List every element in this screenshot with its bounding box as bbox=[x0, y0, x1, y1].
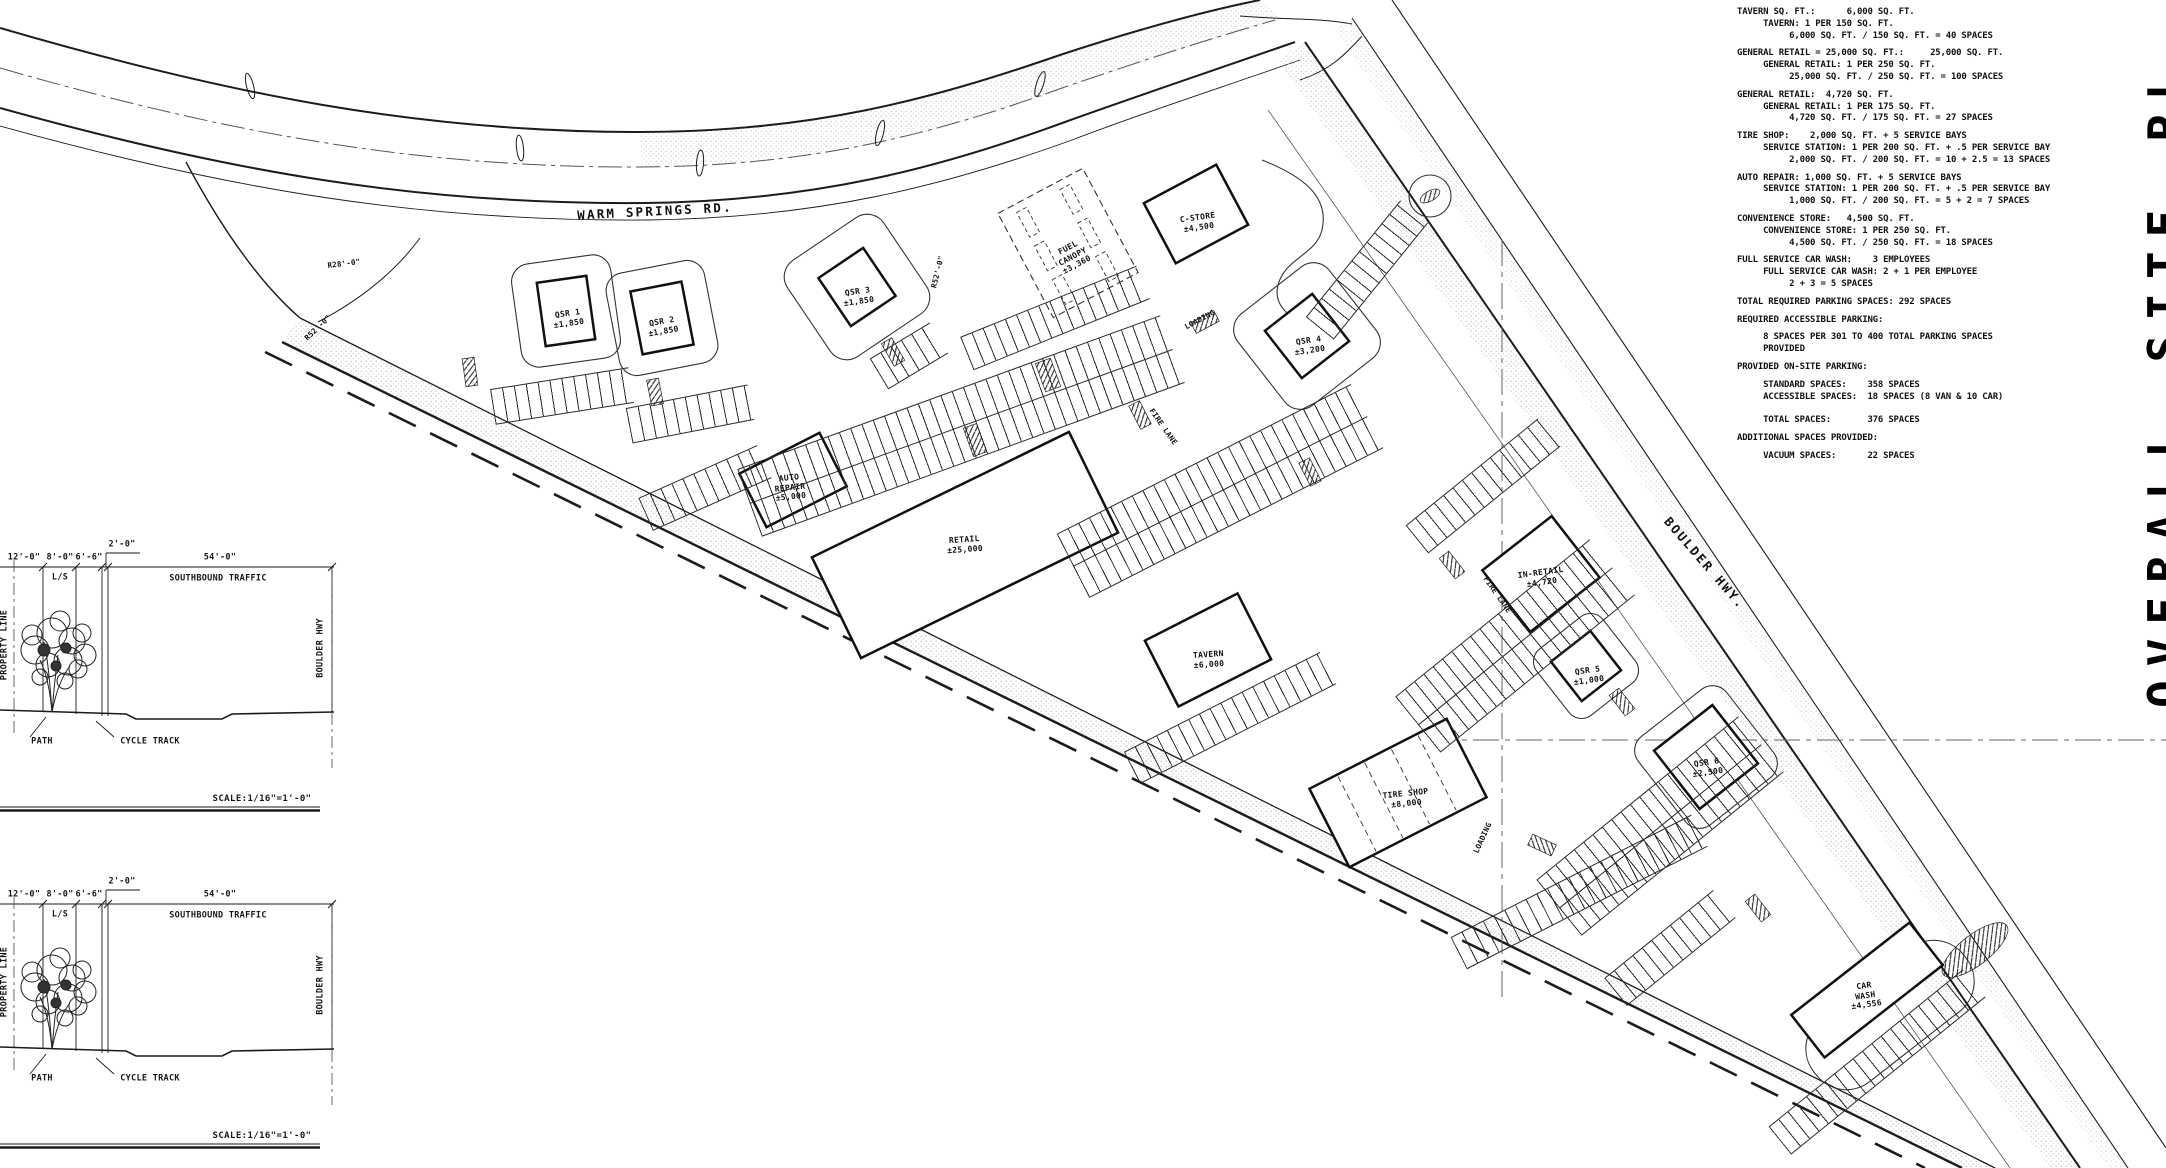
dim-label: 8'-0" bbox=[46, 891, 73, 900]
sheet-title-vertical: OVERALL SITE PL bbox=[2138, 59, 2166, 708]
path-label: PATH bbox=[31, 738, 53, 747]
building-label-qsr-2: QSR 2±1,850 bbox=[643, 296, 680, 339]
calc-convenience-store: CONVENIENCE STORE: 4,500 SQ. FT. CONVENI… bbox=[1737, 214, 2129, 249]
calc-additional-heading: ADDITIONAL SPACES PROVIDED: bbox=[1737, 433, 2129, 445]
calc-car-wash: FULL SERVICE CAR WASH: 3 EMPLOYEES FULL … bbox=[1737, 255, 2129, 290]
calc-tavern: TAVERN SQ. FT.: 6,000 SQ. FT. TAVERN: 1 … bbox=[1737, 7, 2129, 42]
path-label: PATH bbox=[31, 1075, 53, 1084]
scale-label: SCALE:1/16"=1'-0" bbox=[213, 794, 312, 804]
calc-general-retail-25k: GENERAL RETAIL = 25,000 SQ. FT.: 25,000 … bbox=[1737, 48, 2129, 83]
calc-general-retail-4720: GENERAL RETAIL: 4,720 SQ. FT. GENERAL RE… bbox=[1737, 90, 2129, 125]
scale-label: SCALE:1/16"=1'-0" bbox=[213, 1131, 312, 1141]
calc-required-accessible-heading: REQUIRED ACCESSIBLE PARKING: bbox=[1737, 315, 2129, 327]
building-label-qsr-3: QSR 3±1,850 bbox=[839, 266, 875, 308]
building-label-retail: RETAIL±25,000 bbox=[945, 515, 983, 555]
building-label-c-store: C-STORE±4,500 bbox=[1177, 192, 1218, 235]
dim-label: 6'-6" bbox=[75, 891, 102, 900]
calc-tire-shop: TIRE SHOP: 2,000 SQ. FT. + 5 SERVICE BAY… bbox=[1737, 131, 2129, 166]
building-label-qsr-6: QSR 6±2,500 bbox=[1688, 737, 1724, 779]
dim-label: 54'-0" bbox=[204, 891, 237, 900]
building-label-qsr-5: QSR 5±1,000 bbox=[1569, 645, 1605, 687]
landscape-label: L/S bbox=[52, 911, 68, 920]
calc-additional-body: VACUUM SPACES: 22 SPACES bbox=[1737, 451, 2129, 463]
boulder-hwy-label: BOULDER HWY bbox=[317, 955, 326, 1015]
site-plan-sheet: WARM SPRINGS RD. BOULDER HWY. R28'-0" R5… bbox=[0, 0, 2166, 1168]
calc-provided-body: STANDARD SPACES: 358 SPACES ACCESSIBLE S… bbox=[1737, 380, 2129, 427]
calc-total-required: TOTAL REQUIRED PARKING SPACES: 292 SPACE… bbox=[1737, 297, 2129, 309]
building-label-auto-repair: AUTO REPAIR±5,000 bbox=[768, 452, 811, 503]
building-label-qsr-4: QSR 4±3,200 bbox=[1290, 315, 1326, 357]
calc-auto-repair: AUTO REPAIR: 1,000 SQ. FT. + 5 SERVICE B… bbox=[1737, 173, 2129, 208]
parking-calculations-block: TAVERN SQ. FT.: 6,000 SQ. FT. TAVERN: 1 … bbox=[1737, 7, 2129, 469]
property-line-label: PROPERTY LINE bbox=[1, 947, 10, 1017]
dim-label: 2'-0" bbox=[108, 878, 135, 887]
building-label-in-retail: IN-RETAIL±4,720 bbox=[1515, 546, 1566, 590]
cross-section-2: 12'-0" 8'-0" 6'-6" 2'-0" 54'-0" L/S SOUT… bbox=[0, 337, 360, 677]
building-label-car-wash: CAR WASH±4,556 bbox=[1845, 960, 1883, 1011]
calc-provided-heading: PROVIDED ON-SITE PARKING: bbox=[1737, 362, 2129, 374]
building-label-qsr-1: QSR 1±1,850 bbox=[549, 288, 585, 330]
cycle-track-label: CYCLE TRACK bbox=[120, 1075, 180, 1084]
cycle-track-label: CYCLE TRACK bbox=[120, 738, 180, 747]
traffic-label: SOUTHBOUND TRAFFIC bbox=[169, 912, 267, 921]
cross-section-1: 12'-0" 8'-0" 6'-6" 2'-0" 54'-0" L/S SOUT… bbox=[0, 0, 360, 340]
dim-label: 12'-0" bbox=[8, 891, 41, 900]
calc-required-accessible-body: 8 SPACES PER 301 TO 400 TOTAL PARKING SP… bbox=[1737, 332, 2129, 356]
building-label-tavern: TAVERN±6,000 bbox=[1191, 630, 1224, 670]
building-label-tire-shop: TIRE SHOP±8,000 bbox=[1380, 768, 1430, 811]
